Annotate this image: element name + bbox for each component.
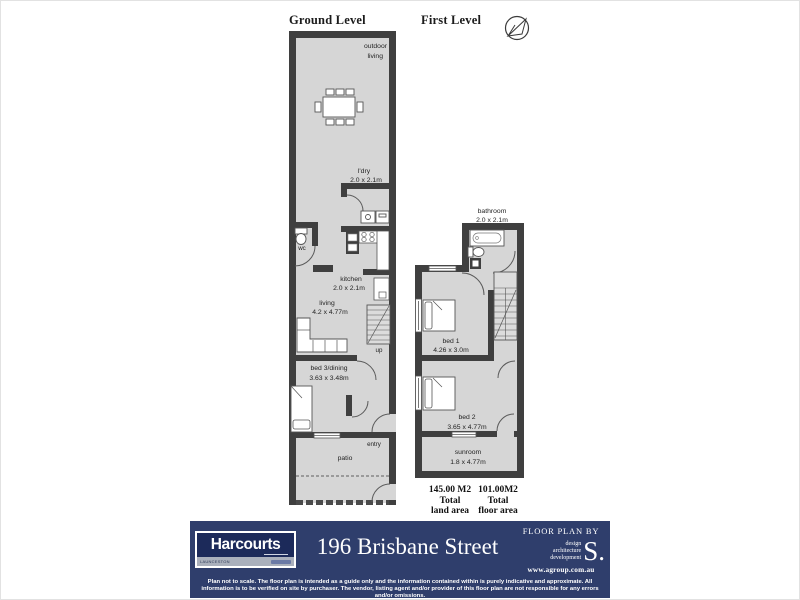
label-bathroom: bathroom — [478, 208, 507, 215]
label-wc: wc — [297, 245, 306, 252]
label-bed2: bed 2 — [458, 414, 475, 421]
bathroom-toilet — [468, 247, 484, 257]
north-compass-icon — [503, 14, 531, 42]
label-living: living — [319, 300, 335, 307]
label-outdoor: outdoor — [364, 43, 388, 50]
floor-plan-by-label: FLOOR PLAN BY — [517, 526, 605, 536]
label-bed3-dims: 3.63 x 3.48m — [309, 375, 349, 382]
designer-row: design architecture development S. — [517, 538, 605, 564]
ground-stairs — [367, 305, 390, 344]
label-up: up — [376, 347, 383, 354]
label-laundry: l'dry — [358, 168, 371, 175]
first-stairs — [494, 272, 517, 340]
harcourts-wordmark-panel: Harcourts — [197, 533, 294, 557]
footer-bar: Harcourts LAUNCESTON 196 Brisbane Street… — [190, 521, 610, 598]
designer-lines: design architecture development — [550, 541, 581, 562]
label-bed3: bed 3/dining — [310, 365, 347, 372]
ground-level-plan: outdoor living l'dry 2.0 x 2.1m wc kitch… — [289, 31, 397, 509]
logo-location-text: LAUNCESTON — [200, 559, 230, 564]
logo-band: LAUNCESTON — [197, 557, 294, 566]
floor-area-value: 101.00M2 — [474, 485, 522, 496]
logo-small-text — [271, 560, 291, 564]
ground-level-title: Ground Level — [289, 13, 366, 28]
label-laundry-dims: 2.0 x 2.1m — [350, 177, 382, 184]
floor-plan-page: Ground Level First Level — [0, 0, 800, 600]
floor-plan-by-block: FLOOR PLAN BY design architecture develo… — [517, 526, 605, 574]
label-bed1: bed 1 — [442, 338, 459, 345]
bathtub — [470, 230, 504, 246]
land-area-total: Total — [424, 496, 476, 507]
designer-website: www.agroup.com.au — [517, 565, 605, 574]
laundry-appliances — [361, 211, 389, 223]
label-entry: entry — [367, 441, 382, 448]
designer-line-1: design — [550, 541, 581, 548]
land-area-label: land area — [424, 506, 476, 517]
first-level-plan: bathroom 2.0 x 2.1m bed 1 4.26 x 3.0m be… — [415, 205, 527, 480]
label-sunroom-dims: 1.8 x 4.77m — [450, 459, 486, 466]
label-bed2-dims: 3.65 x 4.77m — [447, 424, 487, 431]
bed2-bed — [423, 377, 455, 410]
logo-rule — [264, 554, 288, 555]
label-living-dims: 4.2 x 4.77m — [312, 309, 348, 316]
floor-area-summary: 101.00M2 Total floor area — [474, 485, 522, 517]
first-level-title: First Level — [421, 13, 481, 28]
designer-line-2: architecture — [550, 548, 581, 555]
label-kitchen-dims: 2.0 x 2.1m — [333, 285, 365, 292]
wc-toilet — [295, 228, 307, 245]
bed1-bed — [423, 300, 455, 331]
harcourts-logo: Harcourts LAUNCESTON — [195, 531, 296, 568]
land-area-value: 145.00 M2 — [424, 485, 476, 496]
label-kitchen: kitchen — [340, 276, 362, 283]
floor-area-total: Total — [474, 496, 522, 507]
label-outdoor-living: living — [368, 53, 384, 60]
living-cabinet — [374, 278, 389, 300]
ground-windows — [314, 433, 340, 438]
bathroom-sink — [470, 258, 481, 269]
bed3-bed — [291, 386, 312, 432]
property-address: 196 Brisbane Street — [305, 534, 510, 560]
disclaimer-text: Plan not to scale. The floor plan is int… — [195, 579, 605, 600]
label-bathroom-dims: 2.0 x 2.1m — [476, 217, 508, 224]
label-sunroom: sunroom — [455, 449, 482, 456]
harcourts-wordmark: Harcourts — [211, 536, 281, 554]
land-area-summary: 145.00 M2 Total land area — [424, 485, 476, 517]
label-patio: patio — [338, 455, 353, 462]
designer-line-3: development — [550, 555, 581, 562]
label-bed1-dims: 4.26 x 3.0m — [433, 347, 469, 354]
designer-initial: S. — [583, 538, 605, 564]
floor-area-label: floor area — [474, 506, 522, 517]
